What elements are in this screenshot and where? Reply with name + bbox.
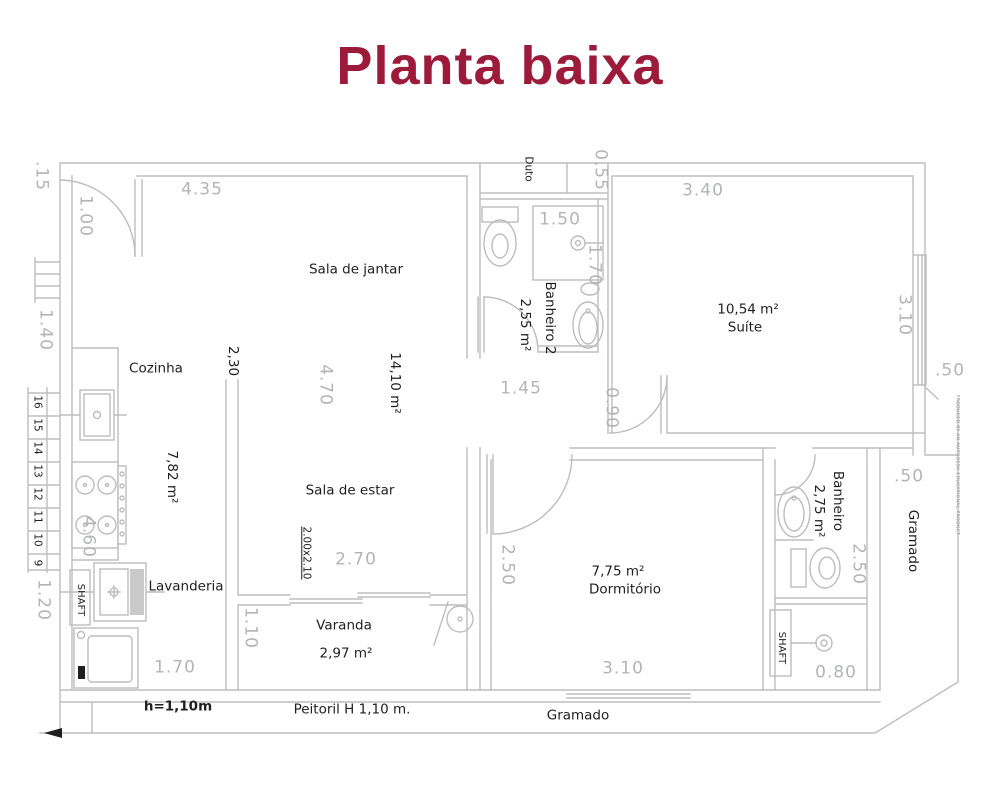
stair-step-number: 13 [32, 464, 43, 477]
dim-4-70: 4.70 [317, 364, 334, 406]
room-label-duto: Duto [523, 156, 534, 181]
room-label-suite: Suíte [728, 321, 762, 335]
gramado-label-right: Gramado [905, 510, 919, 573]
washing-machine-door [88, 636, 132, 682]
dim-0-55: 0,55 [592, 149, 609, 191]
kitchen-faucet [94, 412, 101, 419]
stair-step-number: 16 [32, 395, 43, 408]
toilet2-bowl [484, 220, 516, 266]
dim-2-50-banheiro: 2.50 [850, 543, 867, 585]
dim-3-10-suite: 3.10 [896, 294, 913, 336]
watermark: PRODUCED BY AN AUTODESK EDUCATIONAL PROD… [954, 395, 959, 536]
shaft-label-left: SHAFT [75, 584, 85, 616]
room-label-cozinha: Cozinha [129, 362, 183, 376]
dim-1-40: 1.40 [37, 309, 54, 351]
room-label-banheiro2: Banheiro 2 [542, 281, 556, 354]
dim-3-40: 3.40 [682, 183, 724, 200]
dim-1-45: 1.45 [500, 381, 542, 398]
shower2-head [571, 236, 585, 250]
page-title: Planta baixa [336, 35, 663, 97]
room-area-cozinha: 7,82 m² [164, 451, 178, 504]
kitchen-sink [80, 390, 114, 440]
dim-1-00: 1.00 [77, 195, 94, 237]
room-label-varanda: Varanda [316, 619, 372, 633]
washer-slot [78, 666, 85, 679]
shower-head [816, 635, 832, 651]
stair-step-number: 10 [32, 533, 43, 546]
dim-0-80: 0.80 [815, 665, 857, 682]
room-label-dormitorio: Dormitório [589, 583, 661, 597]
note-peitoril: Peitoril H 1,10 m. [294, 703, 411, 717]
dim-0-50-gramado: .50 [894, 469, 924, 486]
dim-2-70: 2.70 [335, 552, 377, 569]
dim-4-60: 4.60 [80, 516, 97, 558]
room-area-banheiro: 2,75 m² [811, 485, 825, 538]
dim-0-50-suite: .50 [935, 363, 965, 380]
washer-knob [78, 632, 85, 639]
stair-step-number: 9 [32, 560, 43, 567]
room-label-banheiro: Banheiro [830, 471, 844, 531]
gramado-label-bottom: Gramado [547, 709, 610, 723]
room-area-banheiro2: 2,55 m² [517, 299, 531, 352]
dim-1-70-chuveiro: 1.70 [586, 244, 603, 286]
room-area-varanda: 2,97 m² [320, 647, 373, 661]
sink-bowl [778, 487, 810, 537]
stair-step-number: 15 [32, 418, 43, 431]
room-area-sala: 14,10 m² [387, 352, 401, 414]
wall-lines [28, 163, 958, 733]
kitchen-sink-basin [84, 394, 110, 436]
dim-4-35: 4.35 [181, 182, 223, 199]
floor-plan-page: Planta baixa Sala de jantar Sala de esta… [0, 0, 1000, 801]
room-area-dormitorio: 7,75 m² [592, 565, 645, 579]
dim-0-15: .15 [33, 161, 50, 191]
dimension-arrow [44, 728, 62, 738]
room-label-sala-de-estar: Sala de estar [306, 484, 395, 498]
dim-1-20: 1.20 [35, 579, 52, 621]
room-label-lavanderia: Lavanderia [148, 580, 223, 594]
stair-step-number: 12 [32, 487, 43, 500]
dim-1-50: 1.50 [539, 212, 581, 229]
dim-2-30: 2,30 [225, 346, 239, 376]
varanda-drain [447, 606, 473, 632]
dim-2-50-dormitorio: 2.50 [499, 544, 516, 586]
note-sliding-door: 2.00x2.10 [301, 527, 312, 580]
dim-1-70-lavanderia: 1.70 [154, 660, 196, 677]
shaft-label-right: SHAFT [776, 632, 786, 664]
stair-step-number: 14 [32, 441, 43, 454]
note-wall-height: h=1,10m [144, 700, 212, 714]
dim-0-90: 0.90 [603, 387, 620, 429]
stair-step-number: 11 [32, 510, 43, 523]
dim-3-10-dormitorio: 3.10 [602, 661, 644, 678]
dim-1-10: 1.10 [242, 607, 259, 649]
toilet-cistern [791, 549, 806, 587]
room-area-suite: 10,54 m² [717, 303, 779, 317]
laundry-tub-board [130, 569, 144, 615]
room-label-sala-de-jantar: Sala de jantar [309, 263, 403, 277]
